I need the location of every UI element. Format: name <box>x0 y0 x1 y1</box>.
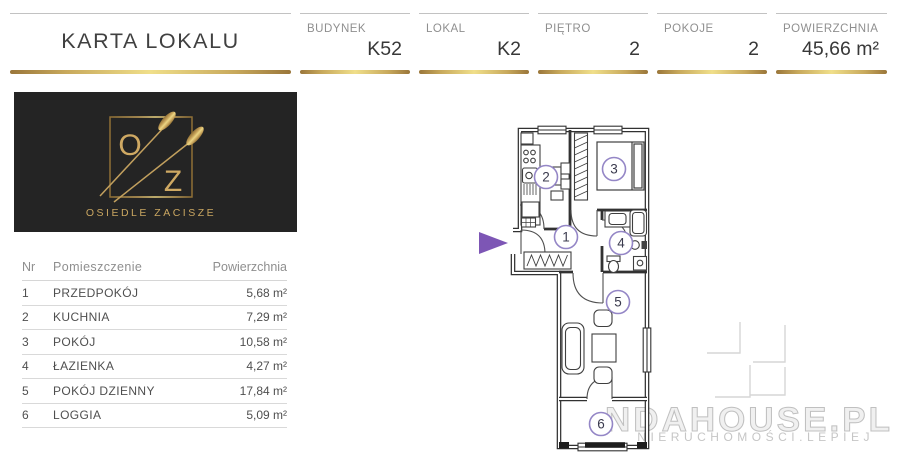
room-nr: 1 <box>22 286 53 300</box>
room-number-label: 4 <box>617 236 625 251</box>
gold-divider <box>776 70 887 75</box>
hall-bench <box>524 252 571 269</box>
info-label: POKOJE <box>664 23 767 35</box>
room-name: LOGGIA <box>53 408 101 422</box>
gold-divider <box>657 70 767 75</box>
room-area: 4,27 m² <box>246 359 287 373</box>
room-area: 7,29 m² <box>246 310 287 324</box>
info-value: 2 <box>657 38 767 61</box>
room-area: 17,84 m² <box>240 384 287 398</box>
room-name: POKÓJ DZIENNY <box>53 384 155 398</box>
room-nr: 2 <box>22 310 53 324</box>
room-nr: 6 <box>22 408 53 422</box>
room-nr: 4 <box>22 359 53 373</box>
table-row: 2 KUCHNIA 7,29 m² <box>22 306 287 331</box>
room-number-markers: 1 2 3 4 5 6 <box>535 158 633 436</box>
logo-monogram-z: Z <box>164 165 182 198</box>
room-number-label: 3 <box>610 162 618 177</box>
room-area: 5,09 m² <box>246 408 287 422</box>
table-row: 4 ŁAZIENKA 4,27 m² <box>22 355 287 380</box>
table-row: 3 POKÓJ 10,58 m² <box>22 330 287 355</box>
table-header-row: Nr Pomieszczenie Powierzchnia <box>22 254 287 281</box>
gold-divider <box>538 70 648 75</box>
table-row: 1 PRZEDPOKÓJ 5,68 m² <box>22 281 287 306</box>
room-name: PRZEDPOKÓJ <box>53 286 138 300</box>
info-label: PIĘTRO <box>545 23 648 35</box>
info-value: K52 <box>300 38 410 61</box>
room-area: 10,58 m² <box>240 335 287 349</box>
room-name: POKÓJ <box>53 335 96 349</box>
page-title: KARTA LOKALU <box>10 14 291 70</box>
info-label: LOKAL <box>426 23 529 35</box>
info-label: BUDYNEK <box>307 23 410 35</box>
info-cell-rooms: POKOJE 2 <box>657 13 767 74</box>
room-number-label: 6 <box>597 417 605 432</box>
info-cell-floor: PIĘTRO 2 <box>538 13 648 74</box>
gold-divider <box>10 70 291 75</box>
room-area: 5,68 m² <box>246 286 287 300</box>
gold-divider <box>419 70 529 75</box>
living-room-furniture <box>562 310 616 384</box>
card-header: KARTA LOKALU <box>10 13 291 74</box>
info-cell-unit: LOKAL K2 <box>419 13 529 74</box>
room-number-label: 2 <box>542 170 550 185</box>
wardrobe <box>575 133 588 200</box>
developer-logo: O Z OSIEDLE ZACISZE <box>14 92 297 232</box>
info-cell-building: BUDYNEK K52 <box>300 13 410 74</box>
table-row: 6 LOGGIA 5,09 m² <box>22 404 287 429</box>
info-value: 2 <box>538 38 648 61</box>
developer-logo-graphic: O Z OSIEDLE ZACISZE <box>14 92 297 232</box>
rooms-table: Nr Pomieszczenie Powierzchnia 1 PRZEDPOK… <box>22 254 287 428</box>
info-cell-area: POWIERZCHNIA 45,66 m² <box>776 13 887 74</box>
room-nr: 5 <box>22 384 53 398</box>
room-number-label: 5 <box>614 295 622 310</box>
logo-monogram-o: O <box>118 129 141 162</box>
info-value: 45,66 m² <box>776 38 887 61</box>
column-header-name: Pomieszczenie <box>53 260 142 274</box>
room-name: ŁAZIENKA <box>53 359 114 373</box>
room-name: KUCHNIA <box>53 310 110 324</box>
floor-plan: 1 2 3 4 5 6 <box>455 95 705 454</box>
info-label: POWIERZCHNIA <box>783 23 887 35</box>
column-header-nr: Nr <box>22 260 53 274</box>
room-nr: 3 <box>22 335 53 349</box>
info-value: K2 <box>419 38 529 61</box>
logo-estate-name: OSIEDLE ZACISZE <box>86 207 216 219</box>
table-row: 5 POKÓJ DZIENNY 17,84 m² <box>22 379 287 404</box>
entrance-arrow-icon <box>479 232 508 254</box>
column-header-area: Powierzchnia <box>213 260 287 274</box>
room-number-label: 1 <box>562 230 570 245</box>
agency-logo-brackets-icon <box>707 322 785 397</box>
gold-divider <box>300 70 410 75</box>
